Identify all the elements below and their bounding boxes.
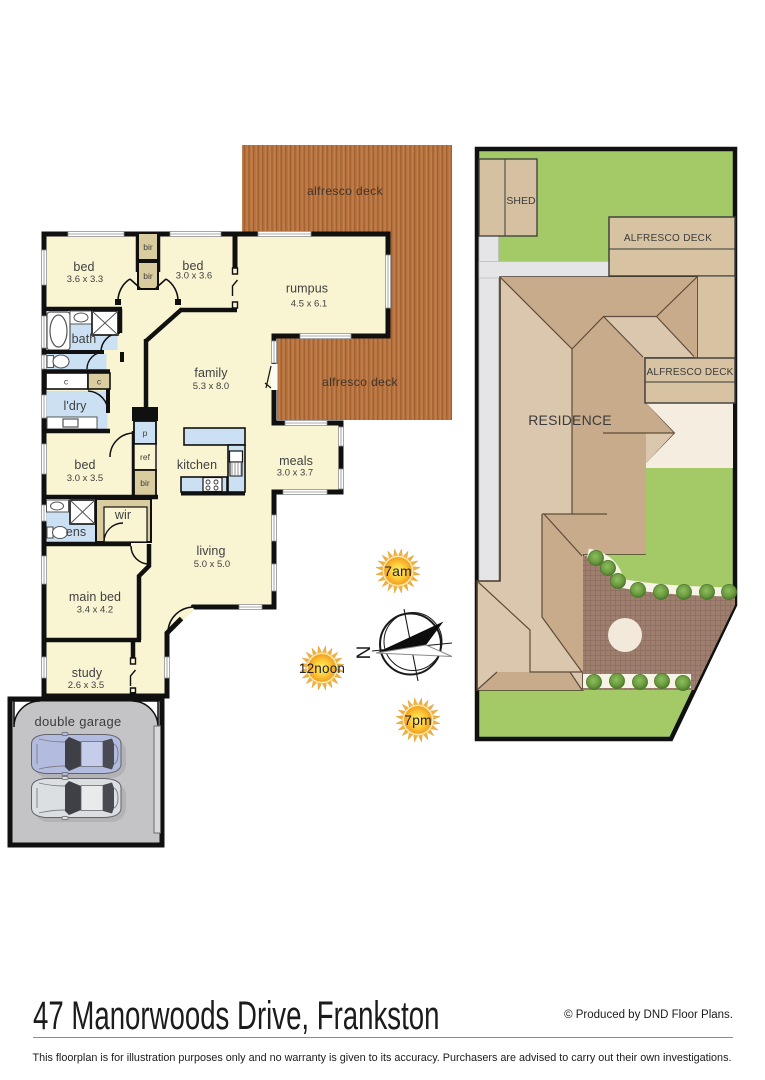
svg-text:2.6 x 3.5: 2.6 x 3.5 — [68, 680, 104, 691]
svg-text:ref: ref — [140, 452, 151, 462]
svg-text:study: study — [72, 666, 103, 680]
svg-text:N: N — [354, 646, 375, 660]
svg-text:4.5 x 6.1: 4.5 x 6.1 — [291, 299, 327, 310]
svg-text:double garage: double garage — [34, 714, 121, 729]
svg-text:bed: bed — [74, 458, 95, 472]
svg-text:This floorplan is for illustra: This floorplan is for illustration purpo… — [33, 1052, 732, 1064]
svg-text:7pm: 7pm — [404, 712, 432, 728]
svg-text:wir: wir — [114, 508, 131, 522]
svg-text:bir: bir — [143, 271, 153, 281]
svg-text:bath: bath — [72, 332, 97, 346]
svg-text:3.6 x 3.3: 3.6 x 3.3 — [67, 274, 103, 285]
svg-text:bir: bir — [143, 242, 153, 252]
svg-text:3.0 x 3.6: 3.0 x 3.6 — [176, 271, 212, 282]
svg-text:3.0 x 3.7: 3.0 x 3.7 — [277, 468, 313, 479]
svg-text:ALFRESCO DECK: ALFRESCO DECK — [646, 367, 733, 378]
svg-text:5.0 x 5.0: 5.0 x 5.0 — [194, 559, 230, 570]
svg-text:p: p — [143, 428, 148, 438]
svg-text:bir: bir — [140, 478, 150, 488]
svg-text:RESIDENCE: RESIDENCE — [528, 412, 611, 428]
svg-text:© Produced by DND Floor Plans.: © Produced by DND Floor Plans. — [564, 1009, 733, 1021]
svg-text:7am: 7am — [384, 563, 412, 579]
svg-text:meals: meals — [279, 454, 313, 468]
svg-text:5.3 x 8.0: 5.3 x 8.0 — [193, 381, 229, 392]
svg-text:rumpus: rumpus — [286, 282, 328, 296]
svg-text:3.4 x 4.2: 3.4 x 4.2 — [77, 605, 113, 616]
svg-text:47 Manorwoods Drive, Frankston: 47 Manorwoods Drive, Frankston — [33, 994, 439, 1038]
svg-text:main bed: main bed — [69, 590, 121, 604]
svg-text:family: family — [194, 366, 228, 380]
svg-text:SHED: SHED — [506, 195, 536, 207]
svg-text:bed: bed — [73, 260, 94, 274]
svg-text:12noon: 12noon — [299, 661, 345, 676]
svg-text:living: living — [196, 544, 225, 558]
svg-text:alfresco deck: alfresco deck — [322, 375, 398, 389]
svg-text:ALFRESCO DECK: ALFRESCO DECK — [624, 233, 712, 244]
svg-text:3.0 x 3.5: 3.0 x 3.5 — [67, 473, 103, 484]
svg-text:alfresco deck: alfresco deck — [307, 184, 383, 198]
svg-text:kitchen: kitchen — [177, 458, 217, 472]
svg-text:l'dry: l'dry — [63, 399, 87, 413]
svg-text:ens: ens — [66, 525, 86, 539]
